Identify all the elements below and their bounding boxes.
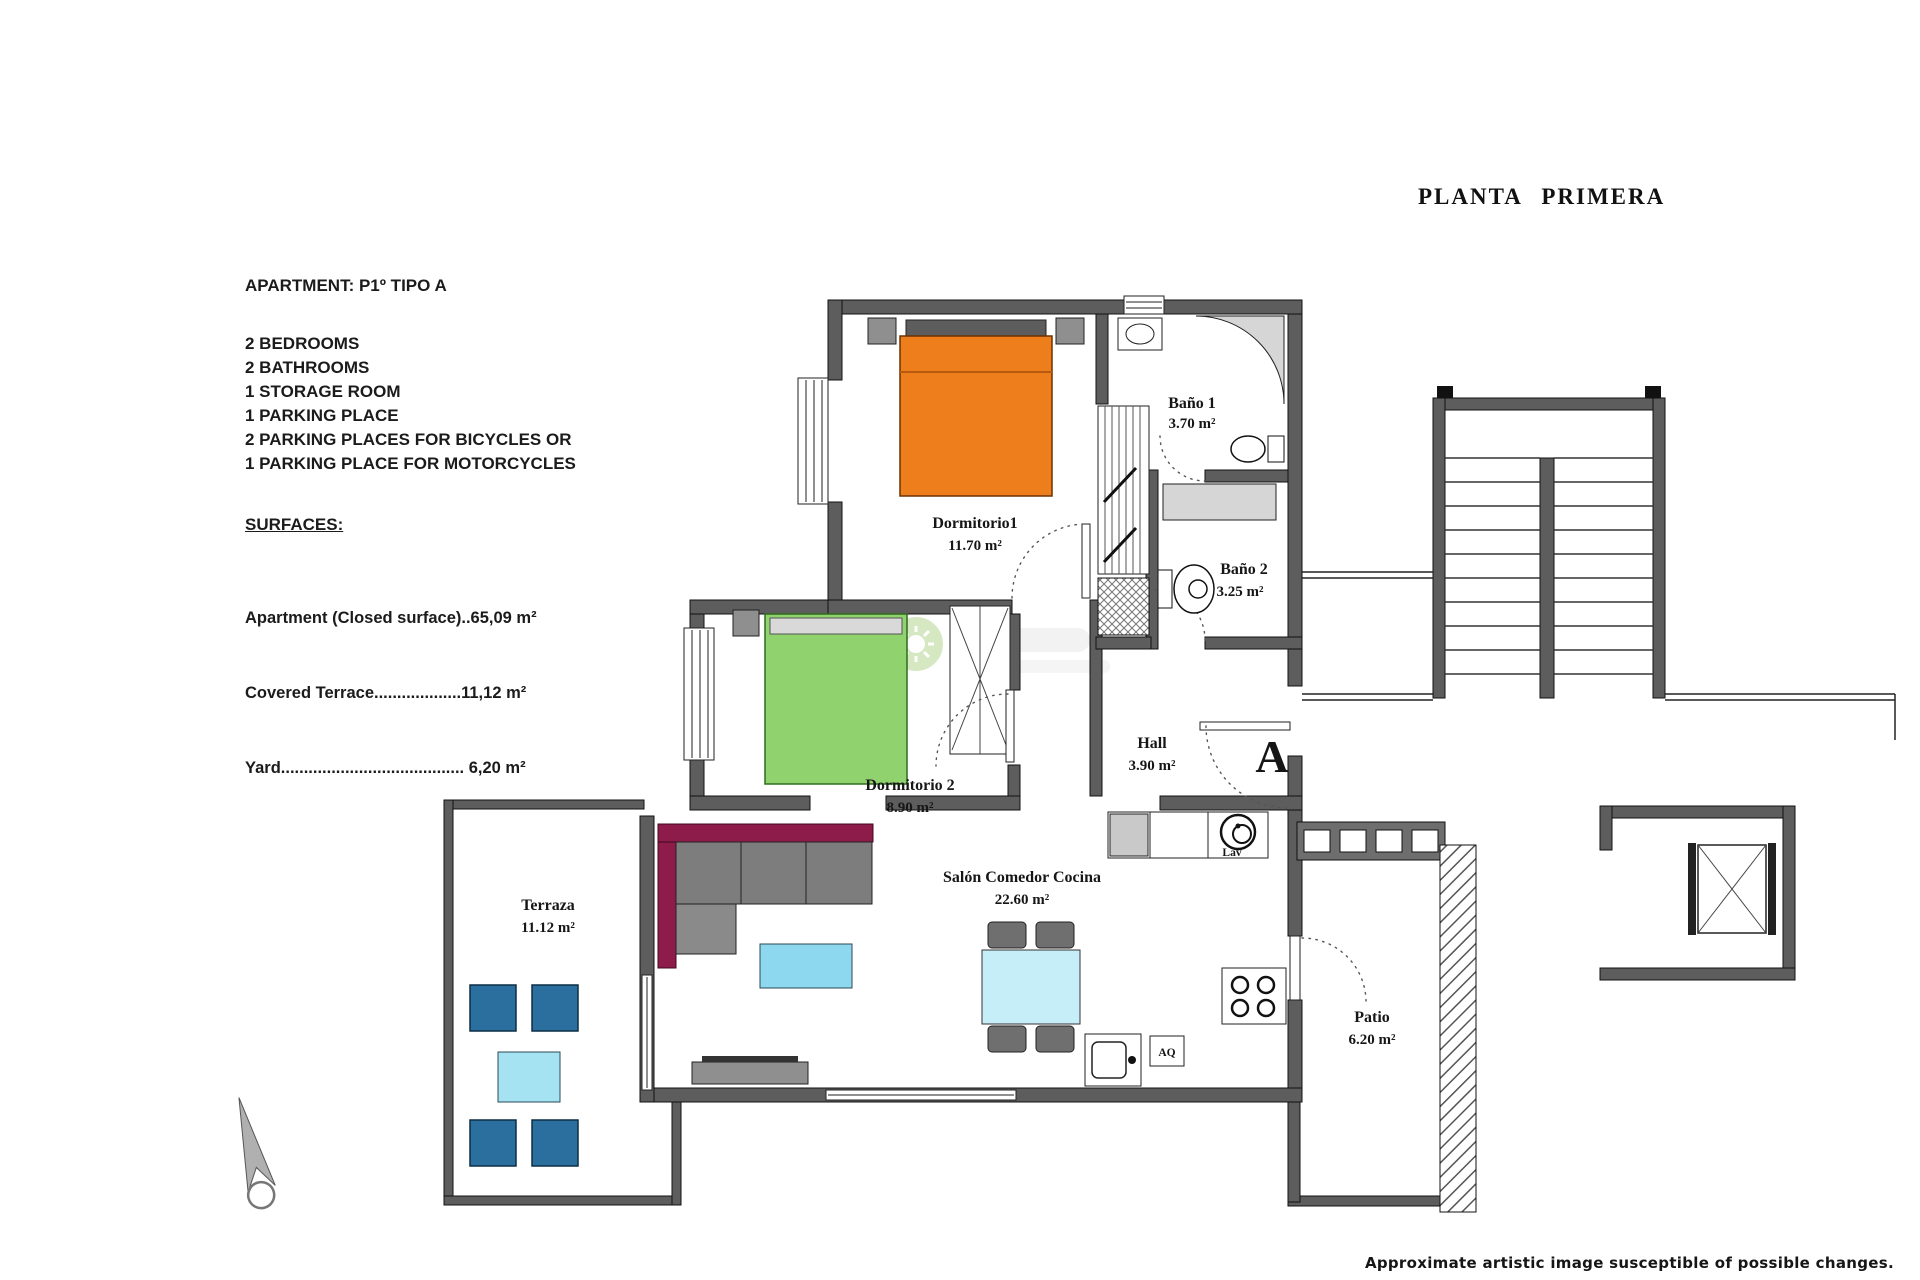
- party-wall-hatch: [1440, 845, 1476, 1212]
- area-dormitorio1: 11.70 m²: [948, 538, 1002, 554]
- water-heater-label: AQ: [1158, 1047, 1175, 1059]
- sink-icon: [1118, 318, 1162, 350]
- feature-line: 2 BEDROOMS: [245, 332, 665, 356]
- bano1-door-arc: [1160, 436, 1205, 481]
- entrance-letter: A: [1255, 731, 1288, 782]
- kitchen: Lav AQ: [1085, 812, 1286, 1086]
- surfaces-list: Apartment (Closed surface)..65,09 m² Cov…: [245, 556, 537, 806]
- feature-line: 1 PARKING PLACE: [245, 404, 665, 428]
- apartment-type-line: APARTMENT: P1º TIPO A: [245, 276, 665, 296]
- terrace-chair: [470, 985, 516, 1031]
- coffee-table: [760, 944, 852, 988]
- dorm1-door-arc: [1012, 524, 1086, 598]
- headboard: [906, 320, 1046, 336]
- terrace-furniture: [470, 985, 578, 1166]
- surface-line: Yard....................................…: [245, 756, 537, 781]
- neighbor-unit-fragment: [1600, 806, 1795, 980]
- toilet2-icon: [1158, 565, 1214, 613]
- label-hall: Hall: [1137, 735, 1167, 752]
- area-bano2: 3.25 m²: [1217, 584, 1264, 600]
- label-terraza: Terraza: [521, 897, 575, 914]
- label-dormitorio1: Dormitorio1: [932, 515, 1017, 532]
- area-terraza: 11.12 m²: [521, 920, 575, 936]
- salon-furniture: [658, 824, 1080, 1084]
- area-dormitorio2: 8.90 m²: [887, 800, 934, 816]
- dorm1-door-leaf: [1082, 524, 1090, 598]
- shower-icon: [1196, 316, 1284, 404]
- page-title: PLANTA PRIMERA: [1418, 184, 1665, 210]
- patio-door-leaf: [1290, 936, 1300, 1000]
- corridor-lines: [1302, 572, 1895, 740]
- window-dormitorio1: [798, 378, 828, 504]
- dining-set: [982, 922, 1080, 1052]
- terrace-table: [498, 1052, 560, 1102]
- terrace-chair: [532, 985, 578, 1031]
- surface-line: Apartment (Closed surface)..65,09 m²: [245, 606, 537, 631]
- dormitorio2-furniture: [733, 610, 907, 784]
- washer-label: Lav: [1222, 847, 1241, 859]
- wardrobe-dormitorio2: [950, 606, 1010, 754]
- area-bano1: 3.70 m²: [1169, 416, 1216, 432]
- storage-room: [1098, 578, 1149, 635]
- bed-orange: [900, 336, 1052, 496]
- pillows: [770, 618, 902, 634]
- area-hall: 3.90 m²: [1129, 758, 1176, 774]
- area-salon: 22.60 m²: [995, 892, 1050, 908]
- label-bano2: Baño 2: [1220, 561, 1268, 578]
- dormitorio1-furniture: [868, 318, 1084, 496]
- window-terrace-door: [642, 975, 652, 1090]
- area-patio: 6.20 m²: [1349, 1032, 1396, 1048]
- feature-line: 1 PARKING PLACE FOR MOTORCYCLES: [245, 452, 665, 476]
- north-arrow-icon: [224, 1094, 279, 1211]
- dorm2-door-leaf: [1006, 690, 1014, 762]
- window-dormitorio2: [684, 628, 714, 760]
- toilet-icon: [1231, 436, 1284, 462]
- dining-table: [982, 950, 1080, 1024]
- feature-line: 2 BATHROOMS: [245, 356, 665, 380]
- info-panel: APARTMENT: P1º TIPO A 2 BEDROOMS 2 BATHR…: [245, 276, 665, 476]
- washing-machine-icon: [1221, 815, 1255, 849]
- floor-plan-page: { "title": "PLANTA PRIMERA", "info": { "…: [0, 0, 1920, 1280]
- nightstand: [733, 610, 759, 636]
- elevator-shaft: [1698, 845, 1766, 933]
- tv-bench: [692, 1056, 808, 1084]
- window-bano1: [1124, 296, 1164, 314]
- surface-line: Covered Terrace...................11,12 …: [245, 681, 537, 706]
- stairwell: [1302, 386, 1895, 740]
- patio-door-arc: [1302, 938, 1366, 1002]
- label-bano1: Baño 1: [1168, 395, 1216, 412]
- fridge-icon: [1110, 814, 1148, 856]
- wardrobe-corridor: [1098, 406, 1149, 574]
- disclaimer-text: Approximate artistic image susceptible o…: [1365, 1254, 1894, 1272]
- entrance-door-leaf: [1200, 722, 1290, 730]
- surfaces-heading: SURFACES:: [245, 515, 343, 535]
- nightstand: [1056, 318, 1084, 344]
- label-patio: Patio: [1354, 1009, 1390, 1026]
- water-heater-icon: AQ: [1150, 1036, 1184, 1066]
- label-dormitorio2: Dormitorio 2: [865, 777, 954, 794]
- bathtub-icon: [1163, 484, 1276, 520]
- label-salon: Salón Comedor Cocina: [943, 869, 1101, 886]
- bed-green: [765, 614, 907, 784]
- feature-line: 2 PARKING PLACES FOR BICYCLES OR: [245, 428, 665, 452]
- kitchen-sink-icon: [1085, 1034, 1141, 1086]
- window-salon-slider: [826, 1090, 1016, 1100]
- terrace-chair: [470, 1120, 516, 1166]
- nightstand: [868, 318, 896, 344]
- terrace-chair: [532, 1120, 578, 1166]
- cooktop-icon: [1222, 968, 1286, 1024]
- feature-line: 1 STORAGE ROOM: [245, 380, 665, 404]
